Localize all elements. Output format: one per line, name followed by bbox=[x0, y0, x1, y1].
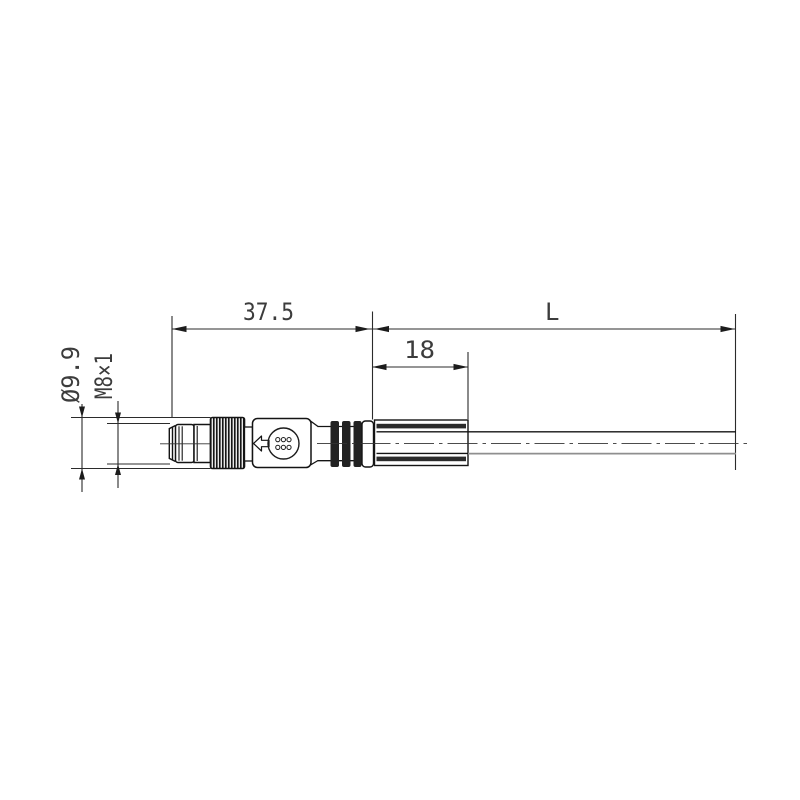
arrow-37-right bbox=[356, 326, 371, 332]
arrow-37-left bbox=[172, 326, 187, 332]
arrow-diameter-top bbox=[79, 407, 85, 418]
arrow-18-left bbox=[372, 364, 387, 370]
arrow-diameter-bottom bbox=[79, 469, 85, 480]
dim-sleeve-length-label: 18 bbox=[404, 336, 435, 364]
dim-cable-length-label: L bbox=[545, 298, 559, 326]
arrow-L-right bbox=[721, 326, 736, 332]
drawing-svg: 37.5 L 18 Ø9.9 M8×1 bbox=[0, 0, 800, 800]
arrow-thread-bottom bbox=[115, 464, 121, 475]
sleeve-band-top bbox=[377, 424, 467, 429]
arrow-L-left bbox=[375, 326, 390, 332]
dim-connector-length-label: 37.5 bbox=[243, 298, 294, 326]
coupling-nut bbox=[211, 418, 245, 469]
dim-thread-size-label: M8×1 bbox=[90, 353, 118, 399]
sleeve-band-bottom bbox=[377, 457, 467, 462]
arrow-18-right bbox=[454, 364, 469, 370]
cable-sleeve bbox=[375, 420, 469, 466]
connector-drawing bbox=[160, 418, 748, 469]
connector-neck bbox=[245, 427, 253, 461]
dimension-texts: 37.5 L 18 Ø9.9 M8×1 bbox=[57, 298, 559, 403]
dim-nut-diameter-label: Ø9.9 bbox=[57, 346, 85, 403]
technical-drawing: 37.5 L 18 Ø9.9 M8×1 bbox=[0, 0, 800, 800]
